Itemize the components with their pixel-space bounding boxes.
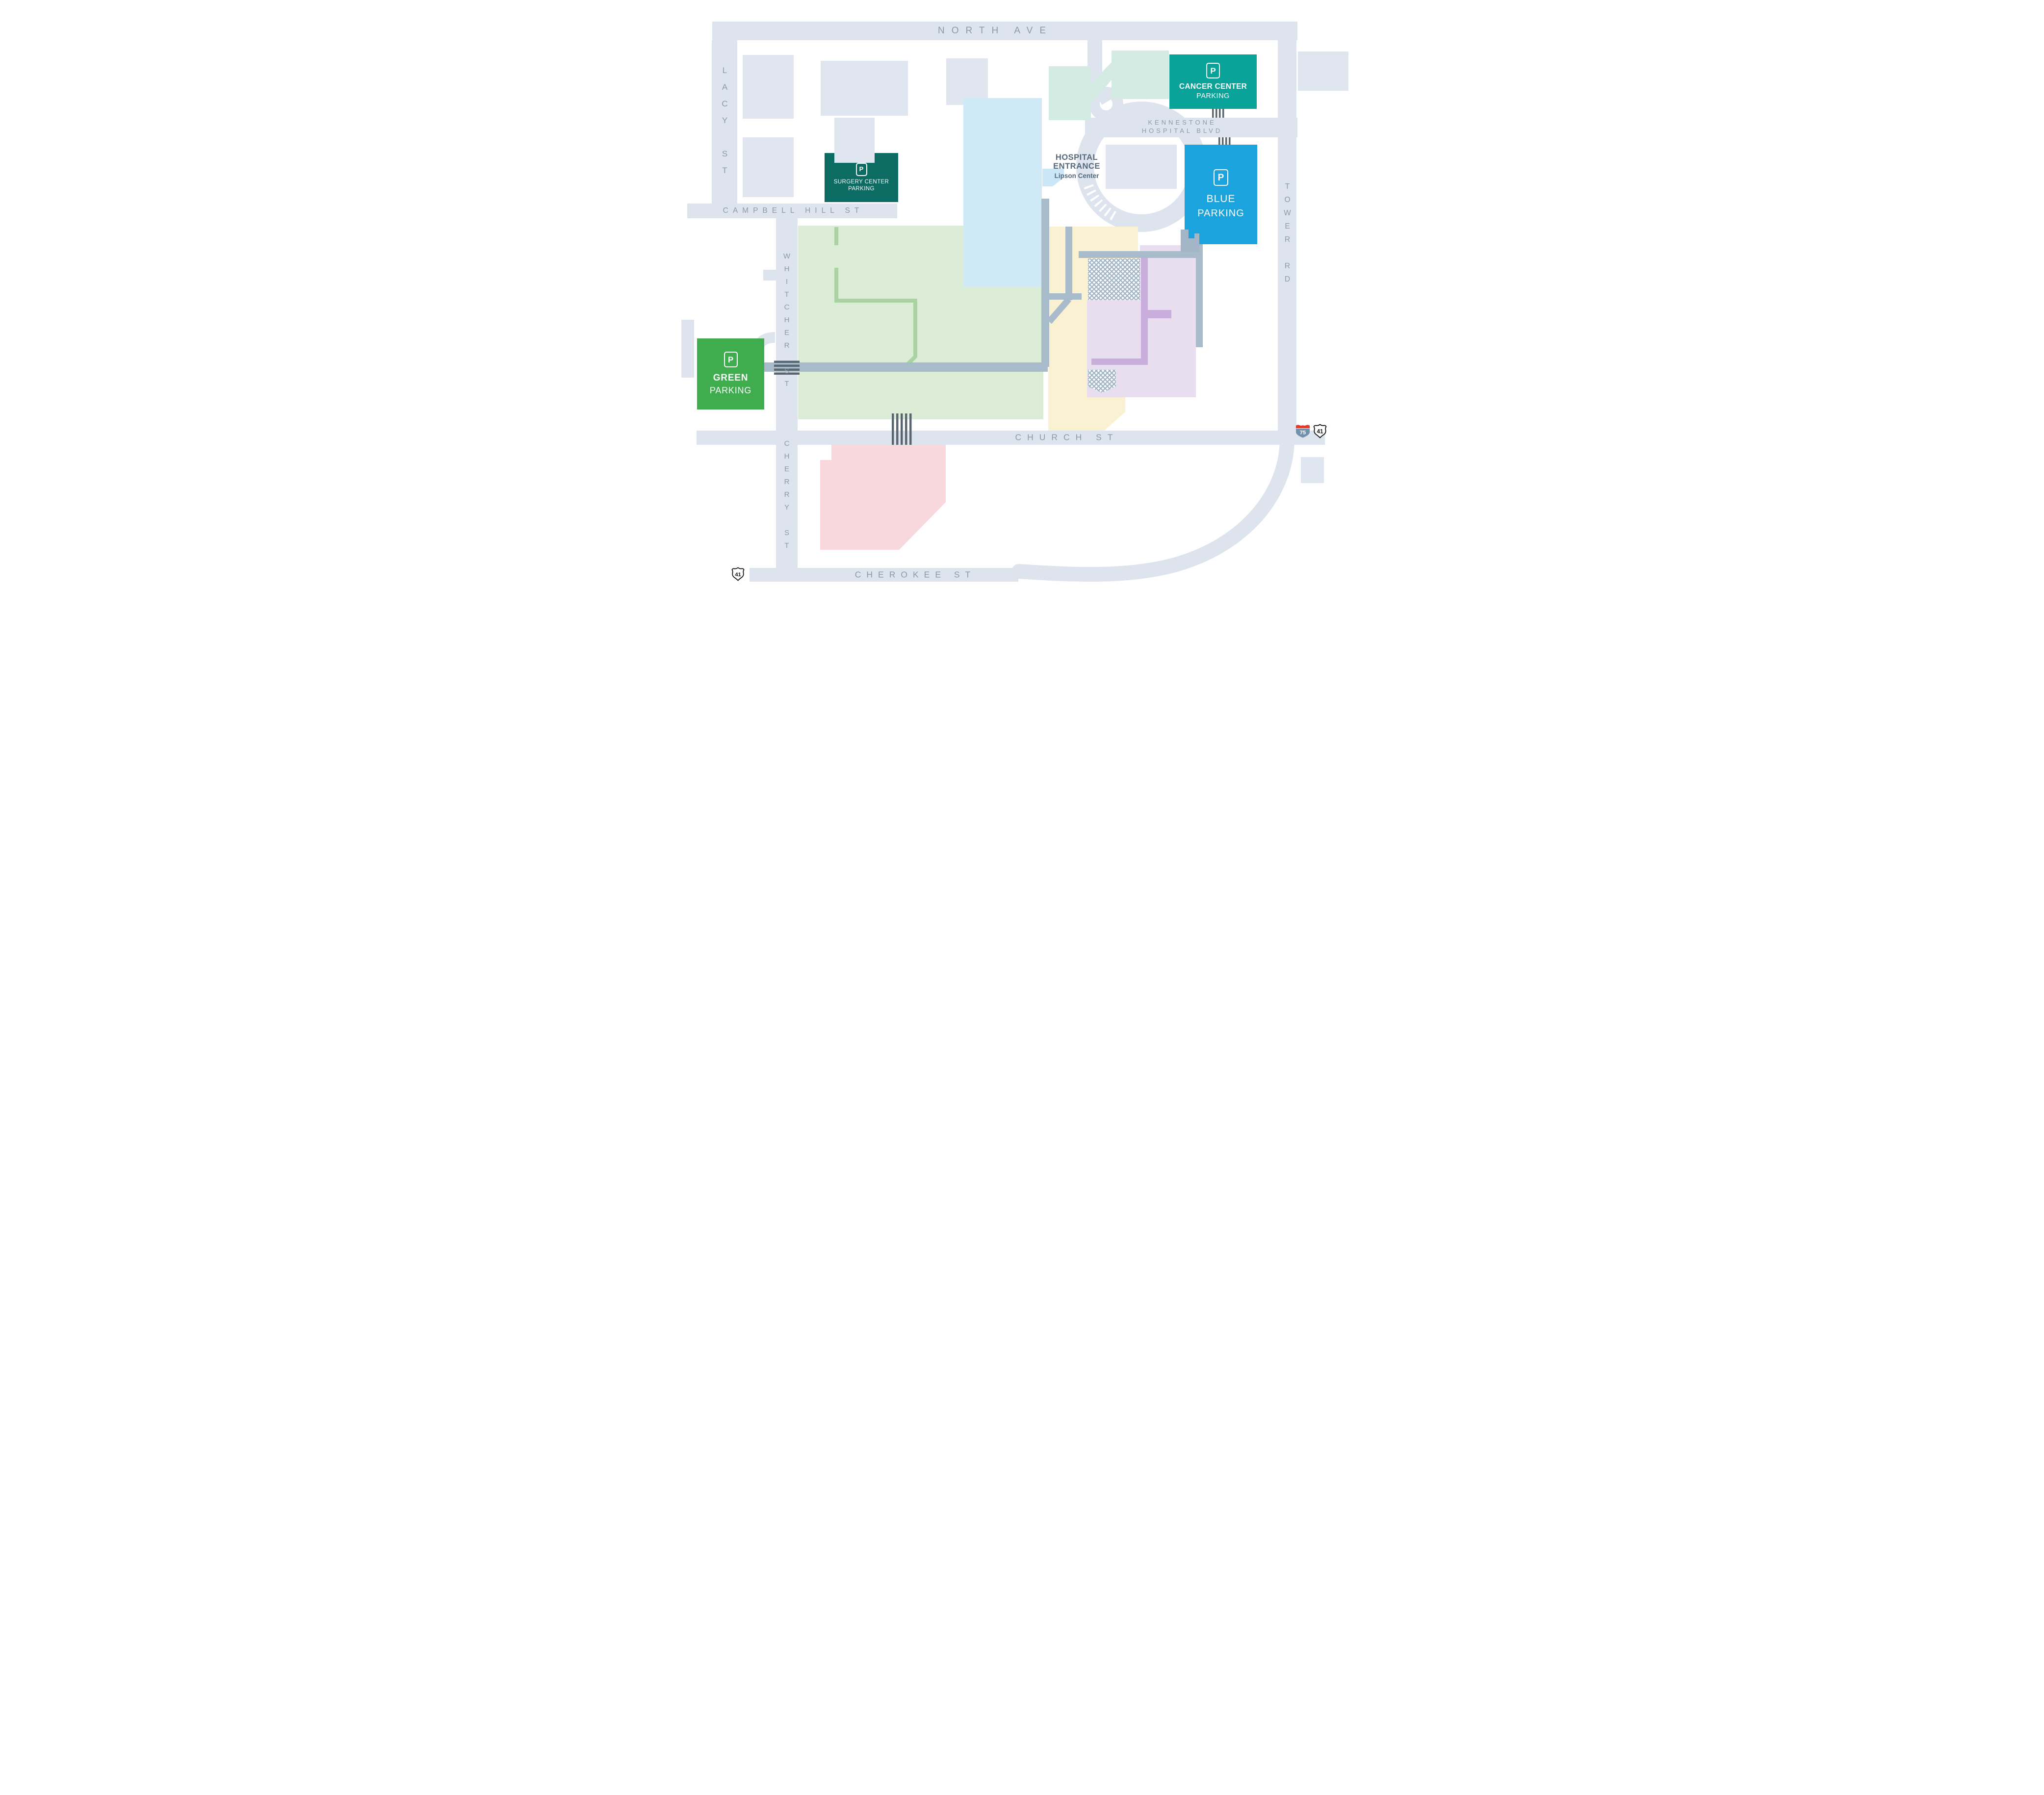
road-left-stub <box>681 320 694 378</box>
svg-text:41: 41 <box>1317 429 1323 435</box>
green-parking-sublabel: PARKING <box>710 385 751 396</box>
svg-text:75: 75 <box>1300 430 1306 436</box>
parking-icon: P <box>724 352 738 367</box>
walkway-corridor-a <box>1041 199 1049 367</box>
entrance-line1: HOSPITAL <box>1053 153 1100 162</box>
us-41-shield-icon: 41 <box>1313 424 1327 438</box>
building-nw-2 <box>743 137 794 197</box>
entrance-line2: ENTRANCE <box>1053 162 1100 171</box>
road-southeast-ramp <box>1019 439 1287 574</box>
entrance-line3: Lipson Center <box>1053 172 1100 179</box>
building-ne-corner <box>1298 51 1348 91</box>
green-parking-label: GREEN <box>713 372 749 384</box>
interstate-75-shield: 75 <box>1295 424 1311 438</box>
label-kennestone-blvd: KENNESTONE HOSPITAL BLVD <box>1142 119 1222 135</box>
blue-parking-label: BLUE <box>1207 193 1236 205</box>
label-church-st: CHURCH ST <box>1015 433 1118 443</box>
green-parking-box: P GREEN PARKING <box>697 338 764 410</box>
crosswalk-church <box>892 413 894 445</box>
crosswalk-church <box>909 413 912 445</box>
building-mint-west <box>1049 66 1091 120</box>
blue-lot-walkway-steps <box>1181 230 1189 252</box>
surgery-parking-sublabel: PARKING <box>848 185 875 192</box>
us-41-shield-icon: 41 <box>731 566 745 582</box>
blue-parking-sublabel: PARKING <box>1197 207 1244 220</box>
crosswalk-blue-lot <box>1222 137 1224 145</box>
label-cherokee-st: CHEROKEE ST <box>855 570 976 580</box>
hospital-entrance-label: HOSPITAL ENTRANCE Lipson Center <box>1053 153 1100 179</box>
crosswalk-blue-lot <box>1225 137 1227 145</box>
road-whitcher-notch <box>763 270 776 281</box>
crosswalk-blue-lot <box>1218 137 1220 145</box>
hatched-area-upper <box>1088 258 1140 300</box>
label-campbell-hill-st: CAMPBELL HILL ST <box>723 206 864 215</box>
crosswalk-church <box>905 413 907 445</box>
surgery-parking-label: SURGERY CENTER <box>834 179 889 185</box>
walkway-main-spine <box>762 362 1048 372</box>
label-north-ave: NORTH AVE <box>938 26 1053 36</box>
label-lacy-st: LACY ST <box>720 66 729 182</box>
cancer-parking-label: CANCER CENTER <box>1179 82 1247 91</box>
crosswalk-church <box>901 413 903 445</box>
label-whitcher-st: WHITCHER ST <box>783 252 791 392</box>
label-kennestone-line1: KENNESTONE <box>1142 119 1222 127</box>
walkway-corridor-b <box>1079 251 1203 258</box>
building-nw-1 <box>743 55 794 119</box>
building-mint-east <box>1112 51 1169 99</box>
parking-icon: P <box>1206 63 1220 78</box>
building-pink-wing <box>820 445 946 550</box>
interstate-75-shield-icon: 75 <box>1295 424 1311 438</box>
blue-lot-walkway-steps <box>1194 233 1199 252</box>
building-over-surgery-lot <box>834 118 875 163</box>
parking-icon: P <box>856 163 867 176</box>
crosswalk-blue-lot <box>1229 137 1231 145</box>
cancer-center-parking-box: P CANCER CENTER PARKING <box>1169 54 1257 109</box>
blue-parking-box: P BLUE PARKING <box>1185 145 1257 244</box>
purple-corridor-bottom <box>1091 359 1141 365</box>
parking-icon: P <box>1214 169 1228 186</box>
crosswalk-cancer-upper <box>1219 109 1221 118</box>
crosswalk-cancer-upper <box>1216 109 1217 118</box>
us-41-shield: 41 <box>1313 424 1327 438</box>
us-41-shield-southwest: 41 <box>731 566 745 582</box>
walkway-corridor-c <box>1196 244 1203 347</box>
campus-map: P CANCER CENTER PARKING P SURGERY CENTER… <box>681 0 1363 598</box>
label-kennestone-line2: HOSPITAL BLVD <box>1142 127 1222 135</box>
building-se-small <box>1301 457 1324 483</box>
cancer-parking-sublabel: PARKING <box>1196 92 1230 101</box>
crosswalk-cancer-upper <box>1222 109 1224 118</box>
building-entrance-court <box>1106 145 1177 189</box>
walkway-corridor-d <box>1065 227 1072 300</box>
building-north-mid <box>946 58 988 105</box>
crosswalk-church <box>896 413 899 445</box>
purple-corridor-vertical <box>1141 251 1148 365</box>
purple-corridor-arm <box>1148 310 1171 318</box>
label-cherry-st: CHERRY ST <box>783 439 791 554</box>
label-tower-rd: TOWER RD <box>1283 182 1292 288</box>
blue-lot-walkway-steps <box>1189 238 1194 252</box>
building-north-large <box>821 61 908 116</box>
crosswalk-cancer-upper <box>1212 109 1214 118</box>
svg-text:41: 41 <box>735 572 741 578</box>
walkway-connector <box>1047 293 1082 300</box>
building-light-blue-tower <box>963 98 1042 287</box>
